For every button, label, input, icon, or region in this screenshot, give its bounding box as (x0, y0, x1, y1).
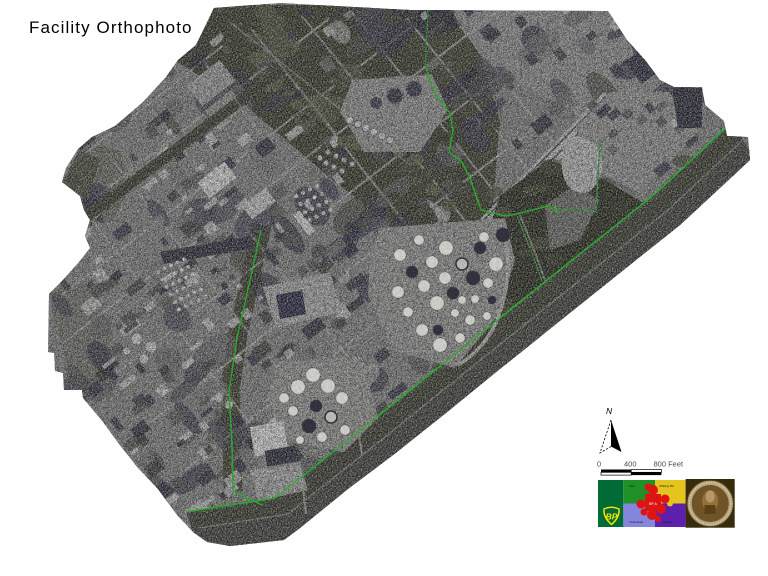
svg-text:N: N (606, 406, 613, 416)
svg-text:800 Feet: 800 Feet (654, 460, 685, 469)
svg-text:Region: Region (663, 520, 673, 524)
svg-text:Ohio: Ohio (629, 484, 636, 488)
svg-text:Chemicals: Chemicals (629, 520, 644, 524)
svg-text:400: 400 (624, 460, 637, 469)
svg-text:Whiting BU: Whiting BU (659, 484, 674, 488)
svg-text:0: 0 (597, 460, 601, 469)
svg-text:BP: BP (606, 512, 618, 522)
svg-text:BP A: BP A (649, 502, 657, 506)
